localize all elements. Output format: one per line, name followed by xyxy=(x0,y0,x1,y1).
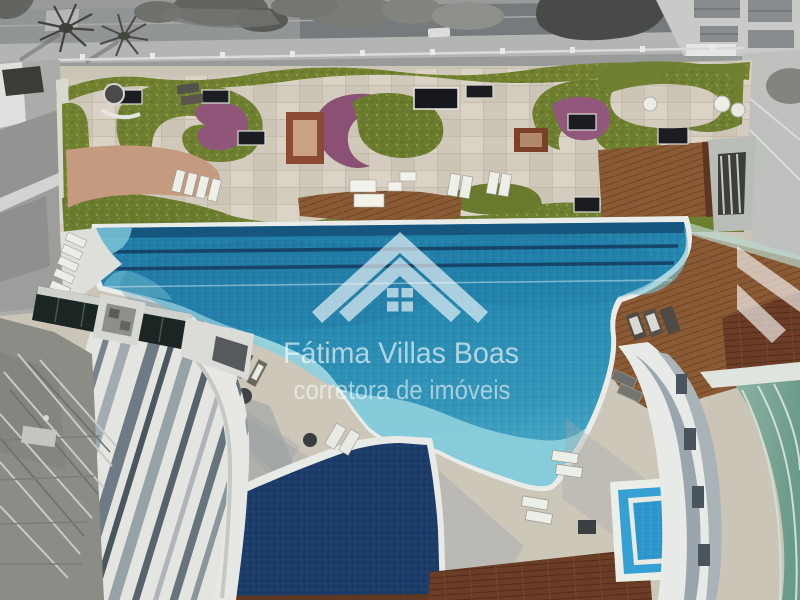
svg-text:corretora de imóveis: corretora de imóveis xyxy=(294,375,511,405)
svg-text:Fátima Villas Boas: Fátima Villas Boas xyxy=(283,337,519,370)
